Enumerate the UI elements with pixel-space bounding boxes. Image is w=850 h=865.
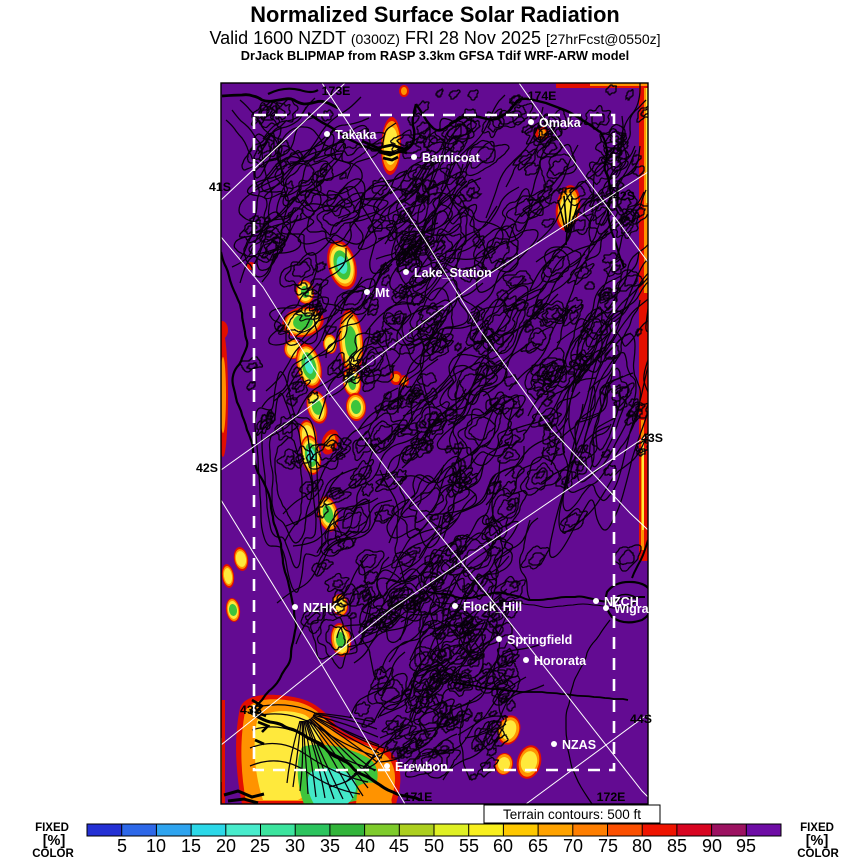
svg-text:41S: 41S	[209, 180, 231, 194]
svg-text:15: 15	[181, 836, 201, 856]
svg-text:50: 50	[424, 836, 444, 856]
svg-text:Lake_Station: Lake_Station	[414, 266, 492, 280]
svg-text:95: 95	[736, 836, 756, 856]
svg-text:Takaka: Takaka	[335, 128, 378, 142]
svg-text:30: 30	[285, 836, 305, 856]
svg-text:55: 55	[459, 836, 479, 856]
svg-text:70: 70	[563, 836, 583, 856]
svg-text:NZAS: NZAS	[562, 738, 596, 752]
svg-text:10: 10	[146, 836, 166, 856]
svg-text:Hororata: Hororata	[534, 654, 587, 668]
svg-text:[%]: [%]	[43, 833, 66, 849]
svg-text:172E: 172E	[597, 790, 626, 804]
svg-text:75: 75	[598, 836, 618, 856]
svg-text:Springfield: Springfield	[507, 633, 572, 647]
svg-text:Normalized Surface Solar Radia: Normalized Surface Solar Radiation	[250, 2, 619, 27]
svg-text:DrJack BLIPMAP from RASP 3.3km: DrJack BLIPMAP from RASP 3.3km GFSA Tdif…	[241, 48, 629, 63]
svg-text:NZHK: NZHK	[303, 601, 338, 615]
svg-text:COLOR: COLOR	[32, 848, 74, 860]
svg-text:Omaka: Omaka	[539, 116, 582, 130]
svg-text:Valid 1600 NZDT (0300Z) FRI 28: Valid 1600 NZDT (0300Z) FRI 28 Nov 2025 …	[209, 28, 660, 48]
svg-text:42S: 42S	[196, 461, 218, 475]
svg-text:Erewhon: Erewhon	[395, 760, 448, 774]
svg-text:Terrain contours: 500 ft: Terrain contours: 500 ft	[503, 807, 641, 822]
svg-text:174E: 174E	[528, 89, 557, 103]
svg-text:5: 5	[117, 836, 127, 856]
svg-text:45: 45	[389, 836, 409, 856]
svg-text:35: 35	[320, 836, 340, 856]
svg-text:20: 20	[216, 836, 236, 856]
svg-text:173E: 173E	[322, 84, 351, 98]
svg-text:85: 85	[667, 836, 687, 856]
svg-text:Flock_Hill: Flock_Hill	[463, 600, 522, 614]
svg-text:COLOR: COLOR	[797, 848, 839, 860]
svg-text:90: 90	[702, 836, 722, 856]
svg-text:43S: 43S	[641, 431, 663, 445]
svg-text:Barnicoat: Barnicoat	[422, 151, 480, 165]
svg-text:43S: 43S	[240, 703, 262, 717]
svg-text:44S: 44S	[630, 712, 652, 726]
svg-text:[%]: [%]	[806, 833, 829, 849]
svg-text:65: 65	[528, 836, 548, 856]
svg-text:171E: 171E	[404, 790, 433, 804]
svg-text:Wigram: Wigram	[614, 602, 660, 616]
svg-text:60: 60	[493, 836, 513, 856]
svg-text:Mt: Mt	[375, 286, 390, 300]
svg-text:25: 25	[250, 836, 270, 856]
svg-text:40: 40	[355, 836, 375, 856]
svg-text:80: 80	[632, 836, 652, 856]
svg-text:42S: 42S	[613, 189, 635, 203]
